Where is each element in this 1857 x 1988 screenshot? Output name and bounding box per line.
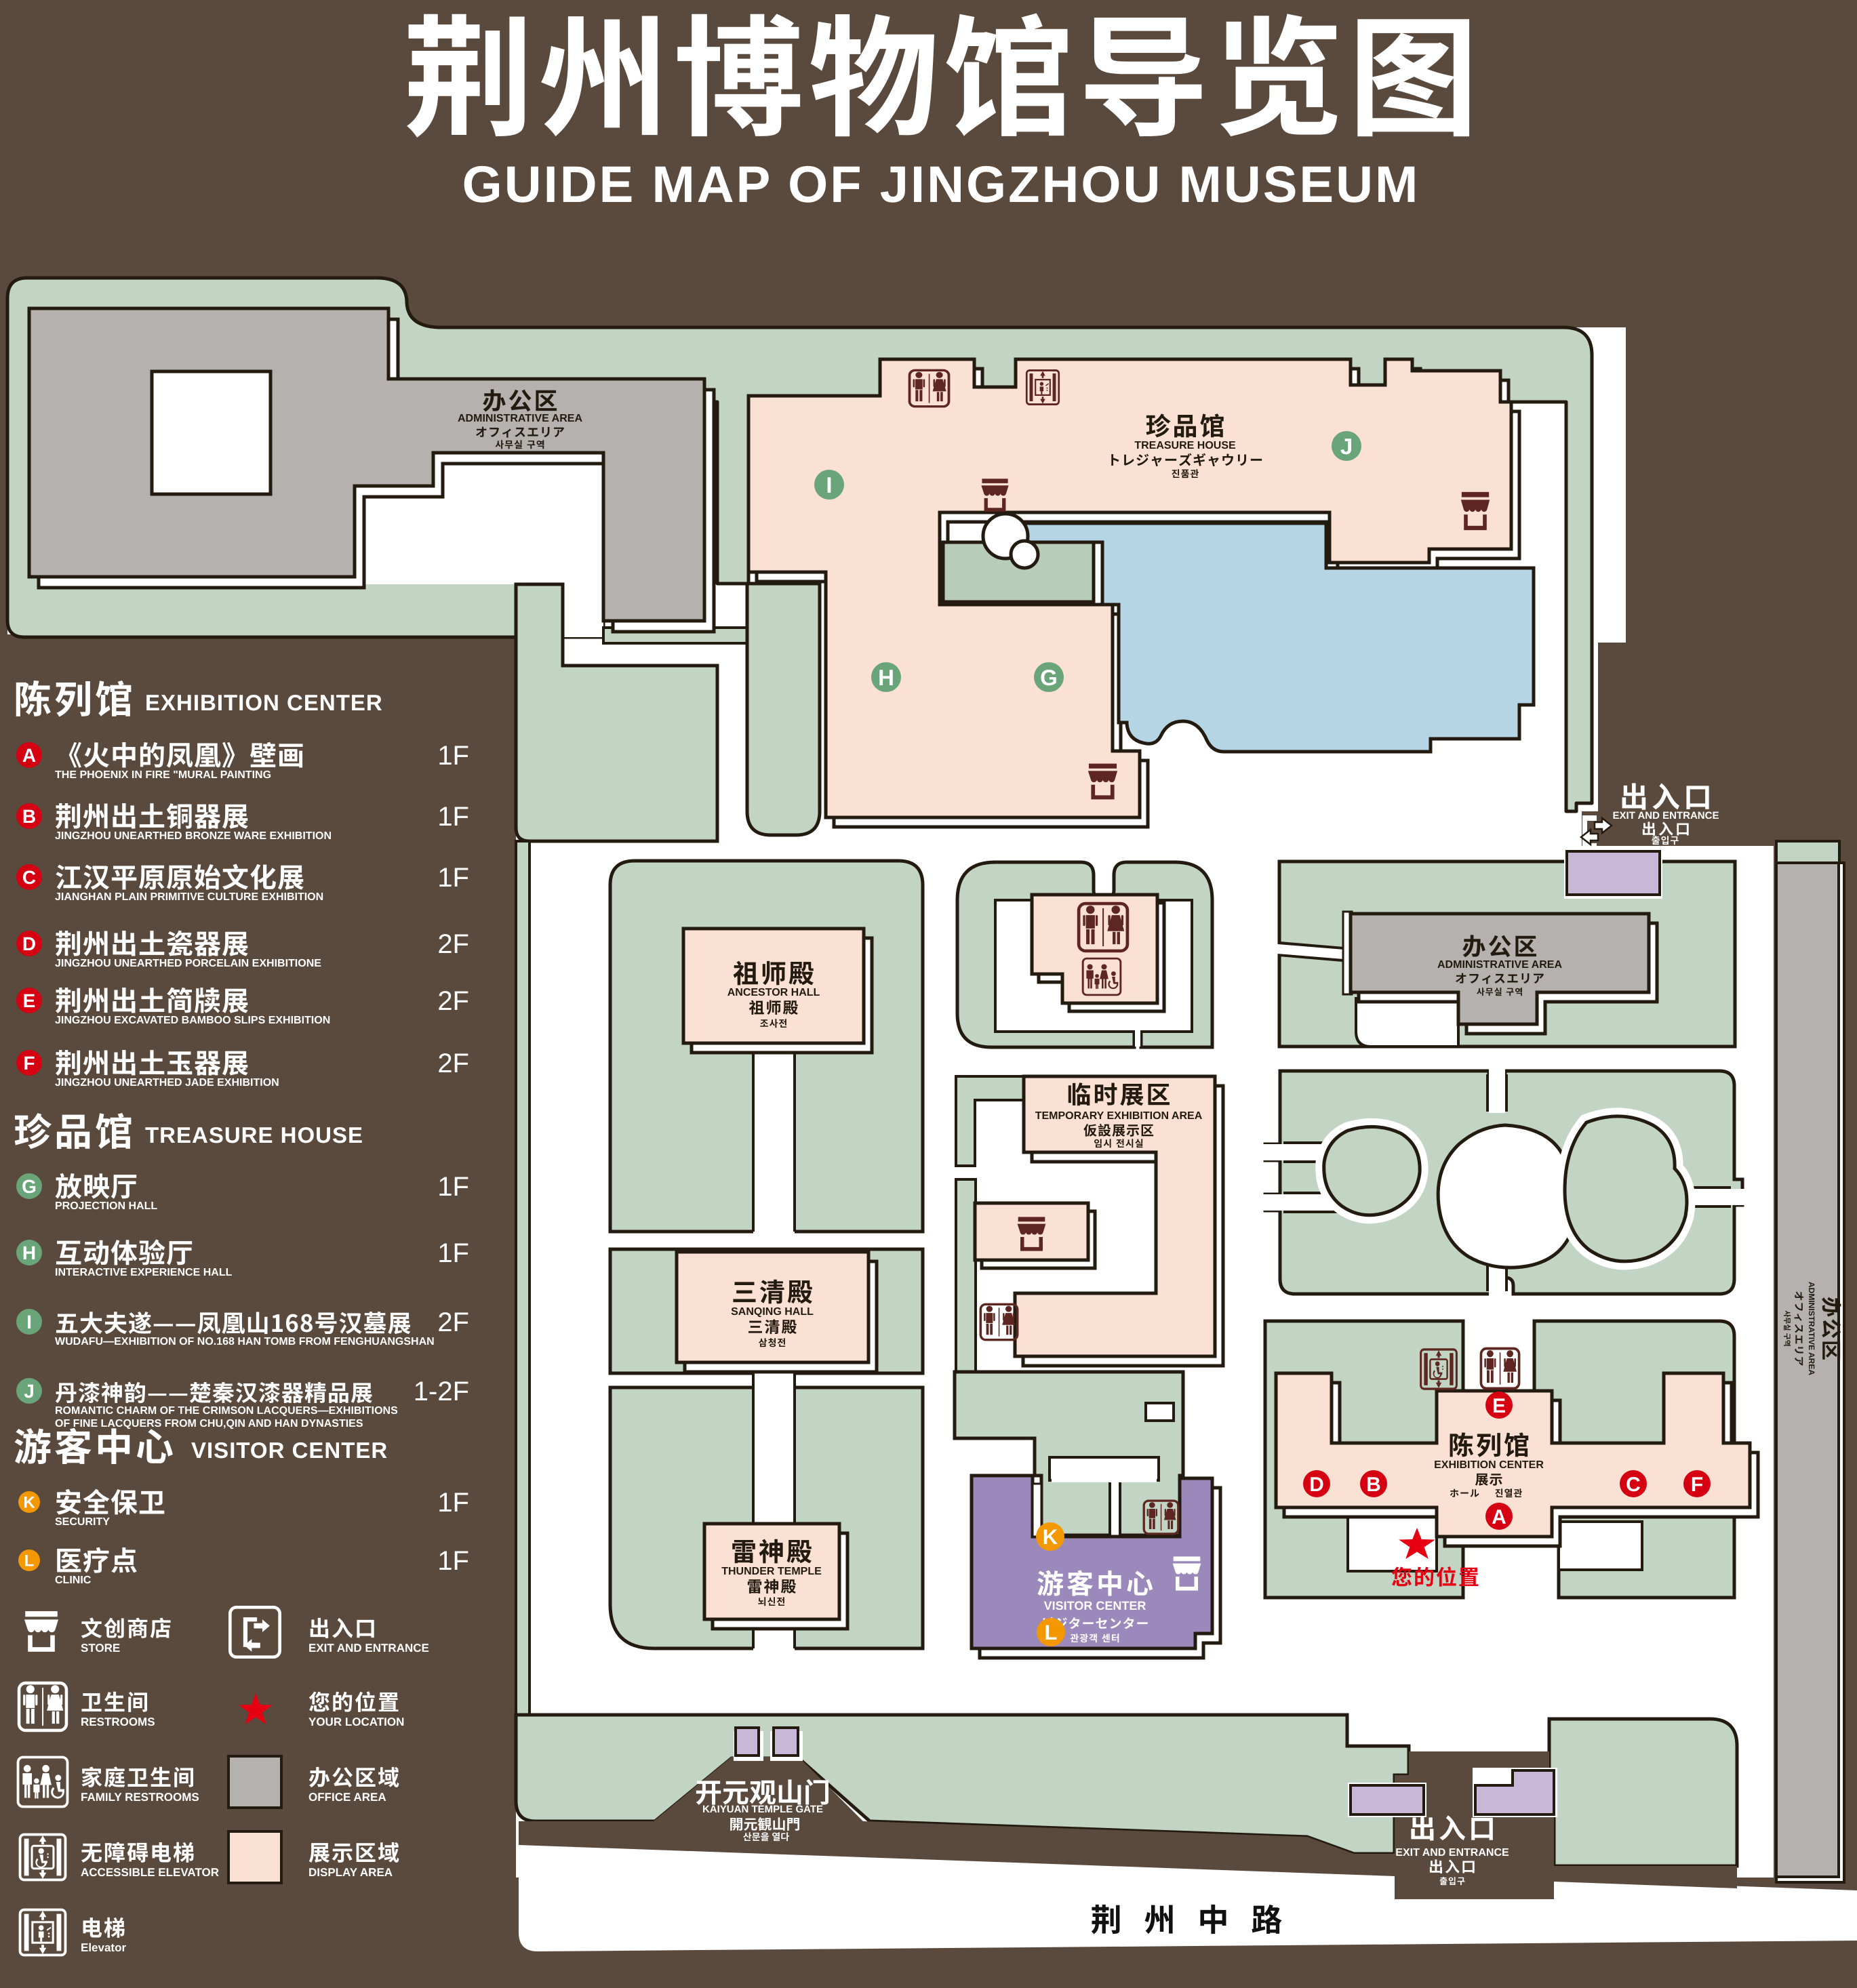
svg-text:1F: 1F	[437, 1488, 469, 1518]
svg-text:J: J	[24, 1381, 35, 1402]
svg-text:A: A	[1492, 1506, 1506, 1528]
svg-text:Elevator: Elevator	[81, 1941, 126, 1954]
svg-text:F: F	[1691, 1474, 1703, 1496]
svg-text:2F: 2F	[437, 986, 469, 1016]
svg-text:E: E	[1492, 1395, 1506, 1417]
svg-text:KAIYUAN TEMPLE GATE: KAIYUAN TEMPLE GATE	[702, 1804, 823, 1815]
svg-text:DISPLAY AREA: DISPLAY AREA	[308, 1866, 393, 1879]
svg-text:YOUR LOCATION: YOUR LOCATION	[308, 1716, 404, 1728]
svg-text:J: J	[1340, 434, 1353, 459]
svg-text:G: G	[1040, 665, 1058, 690]
svg-text:EXIT AND ENTRANCE: EXIT AND ENTRANCE	[1613, 810, 1719, 821]
svg-text:1-2F: 1-2F	[414, 1377, 469, 1406]
svg-text:2F: 2F	[437, 929, 469, 959]
svg-text:L: L	[1045, 1621, 1058, 1644]
svg-text:JIANGHAN PLAIN PRIMITIVE CULTU: JIANGHAN PLAIN PRIMITIVE CULTURE EXHIBIT…	[55, 891, 323, 903]
svg-text:K: K	[1043, 1525, 1058, 1549]
svg-text:FAMILY RESTROOMS: FAMILY RESTROOMS	[81, 1791, 199, 1804]
svg-text:K: K	[23, 1494, 35, 1512]
svg-text:A: A	[22, 745, 36, 766]
svg-text:D: D	[1309, 1474, 1324, 1496]
svg-text:C: C	[1626, 1474, 1641, 1496]
svg-text:VISITOR CENTER: VISITOR CENTER	[191, 1438, 388, 1463]
svg-text:TREASURE HOUSE: TREASURE HOUSE	[145, 1122, 363, 1148]
svg-text:VISITOR CENTER: VISITOR CENTER	[1044, 1599, 1146, 1612]
svg-text:1F: 1F	[437, 863, 469, 893]
svg-text:THE PHOENIX IN FIRE "MURAL PAI: THE PHOENIX IN FIRE "MURAL PAINTING	[55, 769, 271, 781]
svg-text:E: E	[23, 990, 36, 1011]
svg-text:I: I	[826, 472, 832, 498]
svg-text:JINGZHOU EXCAVATED BAMBOO SLIP: JINGZHOU EXCAVATED BAMBOO SLIPS EXHIBITI…	[55, 1015, 330, 1026]
svg-text:THUNDER TEMPLE: THUNDER TEMPLE	[721, 1566, 822, 1577]
svg-text:TREASURE HOUSE: TREASURE HOUSE	[1134, 440, 1236, 451]
svg-text:JINGZHOU UNEARTHED BRONZE WARE: JINGZHOU UNEARTHED BRONZE WARE EXHIBITIO…	[55, 830, 332, 842]
svg-text:GUIDE MAP OF JINGZHOU MUSEUM: GUIDE MAP OF JINGZHOU MUSEUM	[462, 156, 1420, 214]
svg-text:EXHIBITION CENTER: EXHIBITION CENTER	[1434, 1459, 1544, 1471]
svg-text:G: G	[22, 1176, 37, 1197]
svg-text:SECURITY: SECURITY	[55, 1516, 110, 1528]
svg-text:OFFICE AREA: OFFICE AREA	[308, 1791, 386, 1804]
svg-text:1F: 1F	[437, 1238, 469, 1268]
svg-text:STORE: STORE	[81, 1642, 120, 1655]
svg-text:EXHIBITION CENTER: EXHIBITION CENTER	[145, 690, 383, 715]
svg-text:H: H	[878, 665, 894, 690]
svg-text:2F: 2F	[437, 1049, 469, 1078]
svg-text:ANCESTOR HALL: ANCESTOR HALL	[727, 987, 820, 998]
svg-text:CLINIC: CLINIC	[55, 1575, 92, 1586]
svg-text:SANQING HALL: SANQING HALL	[731, 1306, 814, 1318]
svg-text:1F: 1F	[437, 1546, 469, 1576]
svg-text:ADMINISTRATIVE AREA: ADMINISTRATIVE AREA	[1437, 959, 1562, 971]
svg-text:ADMINISTRATIVE AREA: ADMINISTRATIVE AREA	[458, 413, 582, 424]
svg-text:OF FINE LACQUERS FROM CHU,QIN: OF FINE LACQUERS FROM CHU,QIN AND HAN DY…	[55, 1418, 363, 1429]
svg-text:H: H	[22, 1242, 36, 1263]
svg-text:TEMPORARY EXHIBITION AREA: TEMPORARY EXHIBITION AREA	[1035, 1110, 1203, 1122]
svg-text:1F: 1F	[437, 741, 469, 771]
svg-text:F: F	[23, 1053, 35, 1074]
svg-text:I: I	[26, 1312, 32, 1333]
svg-text:2F: 2F	[437, 1307, 469, 1337]
svg-text:WUDAFU—EXHIBITION OF NO.168 HA: WUDAFU—EXHIBITION OF NO.168 HAN TOMB FRO…	[55, 1336, 435, 1347]
svg-text:EXIT AND ENTRANCE: EXIT AND ENTRANCE	[308, 1642, 429, 1655]
svg-text:ADMINISTRATIVE AREA: ADMINISTRATIVE AREA	[1807, 1282, 1816, 1375]
svg-text:B: B	[22, 806, 36, 827]
svg-text:EXIT AND ENTRANCE: EXIT AND ENTRANCE	[1395, 1847, 1509, 1859]
svg-text:INTERACTIVE EXPERIENCE HALL: INTERACTIVE EXPERIENCE HALL	[55, 1267, 233, 1278]
svg-text:JINGZHOU UNEARTHED PORCELAIN E: JINGZHOU UNEARTHED PORCELAIN EXHIBITIONE	[55, 958, 321, 969]
svg-text:PROJECTION HALL: PROJECTION HALL	[55, 1200, 157, 1212]
svg-text:ROMANTIC CHARM OF THE CRIMSON: ROMANTIC CHARM OF THE CRIMSON LACQUERS—E…	[55, 1405, 398, 1417]
svg-text:D: D	[22, 933, 36, 954]
svg-text:ACCESSIBLE ELEVATOR: ACCESSIBLE ELEVATOR	[81, 1866, 219, 1879]
svg-text:1F: 1F	[437, 802, 469, 832]
svg-text:L: L	[24, 1552, 35, 1570]
svg-text:1F: 1F	[437, 1172, 469, 1202]
svg-text:C: C	[22, 867, 36, 888]
svg-text:RESTROOMS: RESTROOMS	[81, 1716, 155, 1728]
svg-text:B: B	[1366, 1474, 1381, 1496]
svg-text:JINGZHOU UNEARTHED JADE EXHIBI: JINGZHOU UNEARTHED JADE EXHIBITION	[55, 1077, 279, 1089]
